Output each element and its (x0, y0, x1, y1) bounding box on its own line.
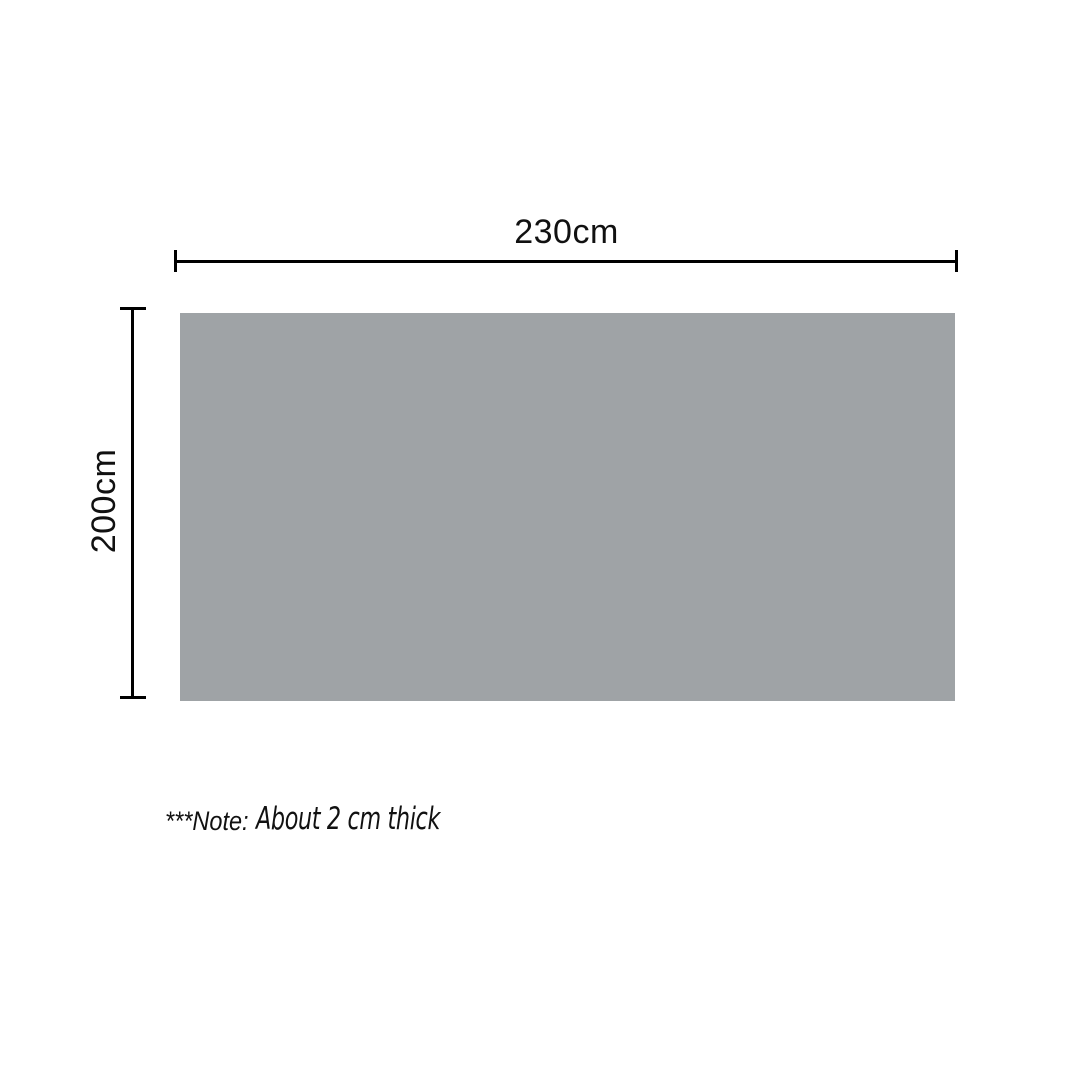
height-dimension-bottom-tick (120, 696, 146, 699)
height-dimension-label: 200cm (86, 449, 122, 554)
product-surface (180, 313, 955, 701)
note-text: About 2 cm thick (256, 801, 440, 837)
height-dimension-top-tick (120, 307, 146, 310)
height-dimension-line (131, 308, 134, 699)
width-dimension-right-tick (955, 250, 958, 272)
width-dimension-left-tick (174, 250, 177, 272)
width-dimension-line (175, 260, 958, 263)
width-dimension-label: 230cm (175, 214, 958, 250)
product-dimension-diagram: 230cm 200cm ***Note: About 2 cm thick (0, 0, 1080, 1080)
note-prefix: ***Note: (165, 806, 249, 837)
